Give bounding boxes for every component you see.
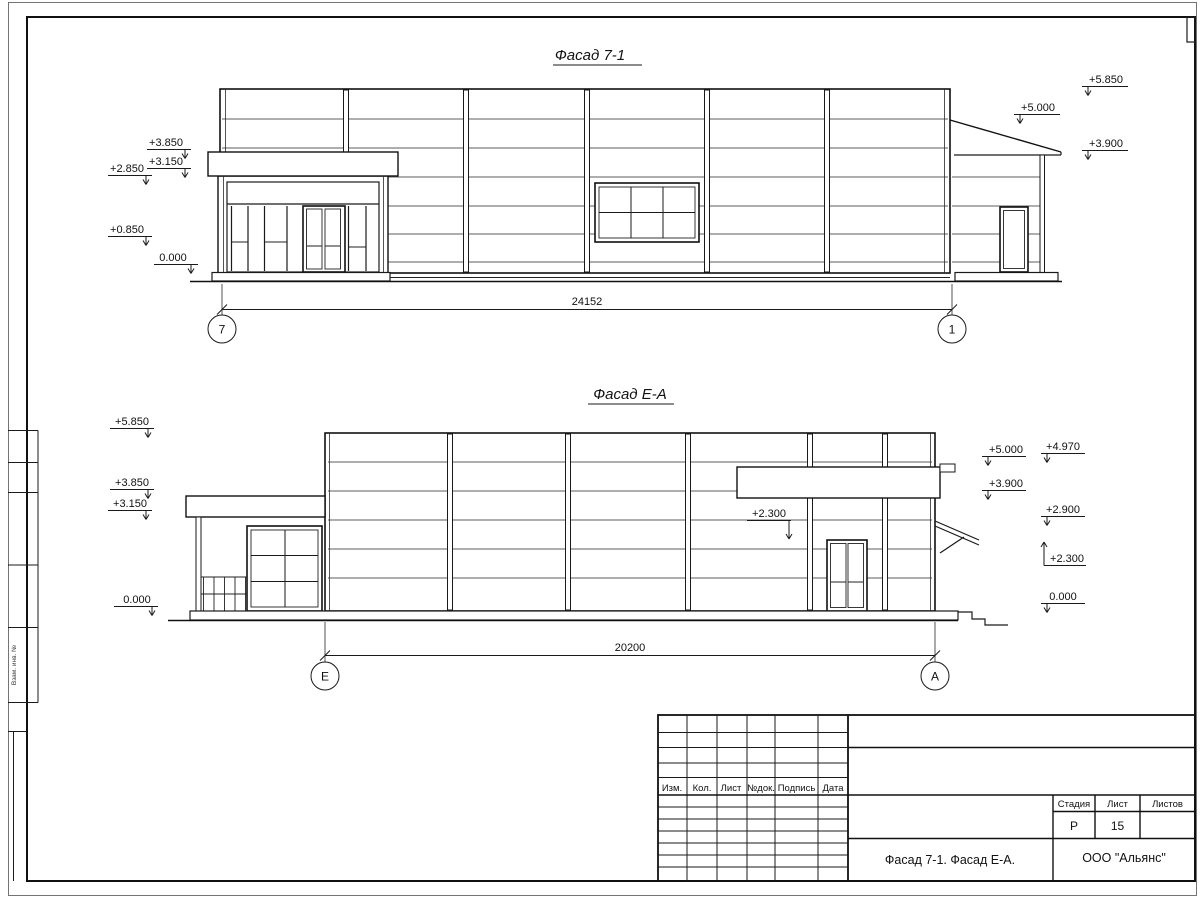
- facade-e-a: Фасад Е-А: [108, 386, 1086, 690]
- svg-text:Е: Е: [321, 670, 329, 684]
- svg-text:+3.150: +3.150: [149, 156, 183, 168]
- elevation-mark: 0.000: [154, 252, 198, 274]
- svg-text:Подпись: Подпись: [778, 783, 816, 794]
- f1-entrance-door: [303, 206, 345, 272]
- f2-base-slab: [190, 611, 958, 620]
- elevation-mark: +5.850: [1082, 74, 1128, 96]
- elevation-mark: +5.850: [110, 416, 154, 438]
- f1-dimension: 24152 7 1: [208, 284, 966, 343]
- elevation-mark: +5.000: [1014, 102, 1060, 124]
- f2-canopy-band: [737, 464, 955, 498]
- svg-text:+2.300: +2.300: [1050, 553, 1084, 565]
- svg-text:+3.150: +3.150: [113, 498, 147, 510]
- svg-text:+4.970: +4.970: [1046, 441, 1080, 453]
- elevation-mark: +3.150: [108, 498, 152, 520]
- f2-dimension: 20200 Е А: [311, 622, 949, 690]
- sheets-label: Листов: [1152, 799, 1183, 810]
- f1-pilasters: [344, 90, 830, 272]
- f2-door: [827, 540, 867, 611]
- elevation-mark: +5.000: [982, 444, 1026, 466]
- facade-7-1-title: Фасад 7-1: [555, 47, 625, 64]
- svg-text:1: 1: [949, 323, 956, 337]
- svg-text:7: 7: [219, 323, 226, 337]
- left-stamp-strip: Взам. инв. №: [8, 431, 38, 882]
- elevation-mark: 0.000: [1041, 591, 1085, 613]
- svg-text:+2.300: +2.300: [752, 508, 786, 520]
- svg-text:0.000: 0.000: [123, 594, 151, 606]
- svg-text:+3.850: +3.850: [115, 477, 149, 489]
- svg-text:Дата: Дата: [822, 783, 844, 794]
- svg-text:+2.850: +2.850: [110, 163, 144, 175]
- f2-elevation-marks-right-2: +4.970 +2.900 +2.300 0.000: [1041, 441, 1086, 613]
- f2-elevation-marks-left: +5.850 +3.850 +3.150 0.000: [108, 416, 158, 616]
- f1-annex-door: [1000, 207, 1028, 272]
- f1-window: [595, 183, 699, 242]
- svg-text:+5.850: +5.850: [1089, 74, 1123, 86]
- f1-elevation-marks-right: +5.850 +5.000 +3.900: [1014, 74, 1128, 160]
- f2-mid-elevation-mark: +2.300: [747, 508, 792, 539]
- title-block-revision-headers: Изм. Кол. Лист №док. Подпись Дата: [662, 783, 844, 794]
- elevation-mark: +3.850: [110, 477, 154, 499]
- f2-pilasters: [448, 434, 888, 610]
- svg-text:+0.850: +0.850: [110, 224, 144, 236]
- f1-dimension-value: 24152: [572, 296, 603, 308]
- svg-text:Лист: Лист: [721, 783, 742, 794]
- f2-elevation-marks-right-1: +5.000 +3.900: [982, 444, 1026, 500]
- svg-text:0.000: 0.000: [159, 252, 187, 264]
- drawing-sheet: Взам. инв. № Фасад 7-1: [0, 0, 1200, 900]
- title-block-stage-cells: Стадия Лист Листов Р 15: [1058, 799, 1183, 833]
- f2-annex-canopy: [186, 496, 325, 517]
- f1-entrance-canopy: [208, 152, 398, 176]
- elevation-mark: +2.850: [108, 163, 152, 185]
- elevation-mark: 0.000: [114, 594, 158, 616]
- f1-elevation-marks-left: +3.850 +3.150 +2.850 +0.850 0.000: [108, 137, 198, 274]
- svg-text:+3.900: +3.900: [989, 478, 1023, 490]
- svg-text:+3.900: +3.900: [1089, 138, 1123, 150]
- drawing-name: Фасад 7-1. Фасад Е-А.: [885, 853, 1015, 867]
- stamp-strip-vertical-label: Взам. инв. №: [11, 645, 18, 685]
- svg-text:+5.850: +5.850: [115, 416, 149, 428]
- f2-dimension-value: 20200: [615, 642, 646, 654]
- elevation-mark: +3.900: [1082, 138, 1128, 160]
- title-block: Изм. Кол. Лист №док. Подпись Дата Стадия…: [658, 715, 1195, 881]
- facade-e-a-title: Фасад Е-А: [593, 386, 667, 403]
- svg-text:+3.850: +3.850: [149, 137, 183, 149]
- f2-left-annex: [186, 496, 325, 611]
- svg-text:+2.900: +2.900: [1046, 504, 1080, 516]
- svg-text:№док.: №док.: [747, 783, 775, 794]
- svg-text:+5.000: +5.000: [1021, 102, 1055, 114]
- f2-steps: [958, 612, 1008, 625]
- f2-side-canopy: [935, 521, 979, 553]
- facade-7-1: Фасад 7-1: [108, 47, 1128, 343]
- svg-text:А: А: [931, 670, 939, 684]
- svg-text:Изм.: Изм.: [662, 783, 682, 794]
- f1-entrance-base: [212, 273, 390, 282]
- elevation-mark: +0.850: [108, 224, 152, 246]
- stage-label: Стадия: [1058, 799, 1090, 810]
- svg-text:Кол.: Кол.: [693, 783, 712, 794]
- sheet-label: Лист: [1107, 799, 1128, 810]
- elevation-mark-rise: +2.300: [1041, 542, 1086, 566]
- elevation-mark: +3.150: [147, 156, 191, 178]
- sheet-number: 15: [1111, 819, 1125, 833]
- stage-value: Р: [1070, 819, 1078, 833]
- f2-annex-fence: [201, 577, 247, 611]
- svg-text:+5.000: +5.000: [989, 444, 1023, 456]
- company-name: ООО "Альянс": [1082, 851, 1166, 865]
- f1-annex: [950, 120, 1061, 281]
- drawing-canvas: Взам. инв. № Фасад 7-1: [0, 0, 1200, 900]
- frame-corner-box: [1187, 17, 1195, 42]
- elevation-mark: +4.970: [1041, 441, 1085, 463]
- f1-entrance: [208, 152, 398, 281]
- svg-text:0.000: 0.000: [1049, 591, 1077, 603]
- elevation-mark: +2.900: [1041, 504, 1085, 526]
- elevation-mark: +3.900: [982, 478, 1026, 500]
